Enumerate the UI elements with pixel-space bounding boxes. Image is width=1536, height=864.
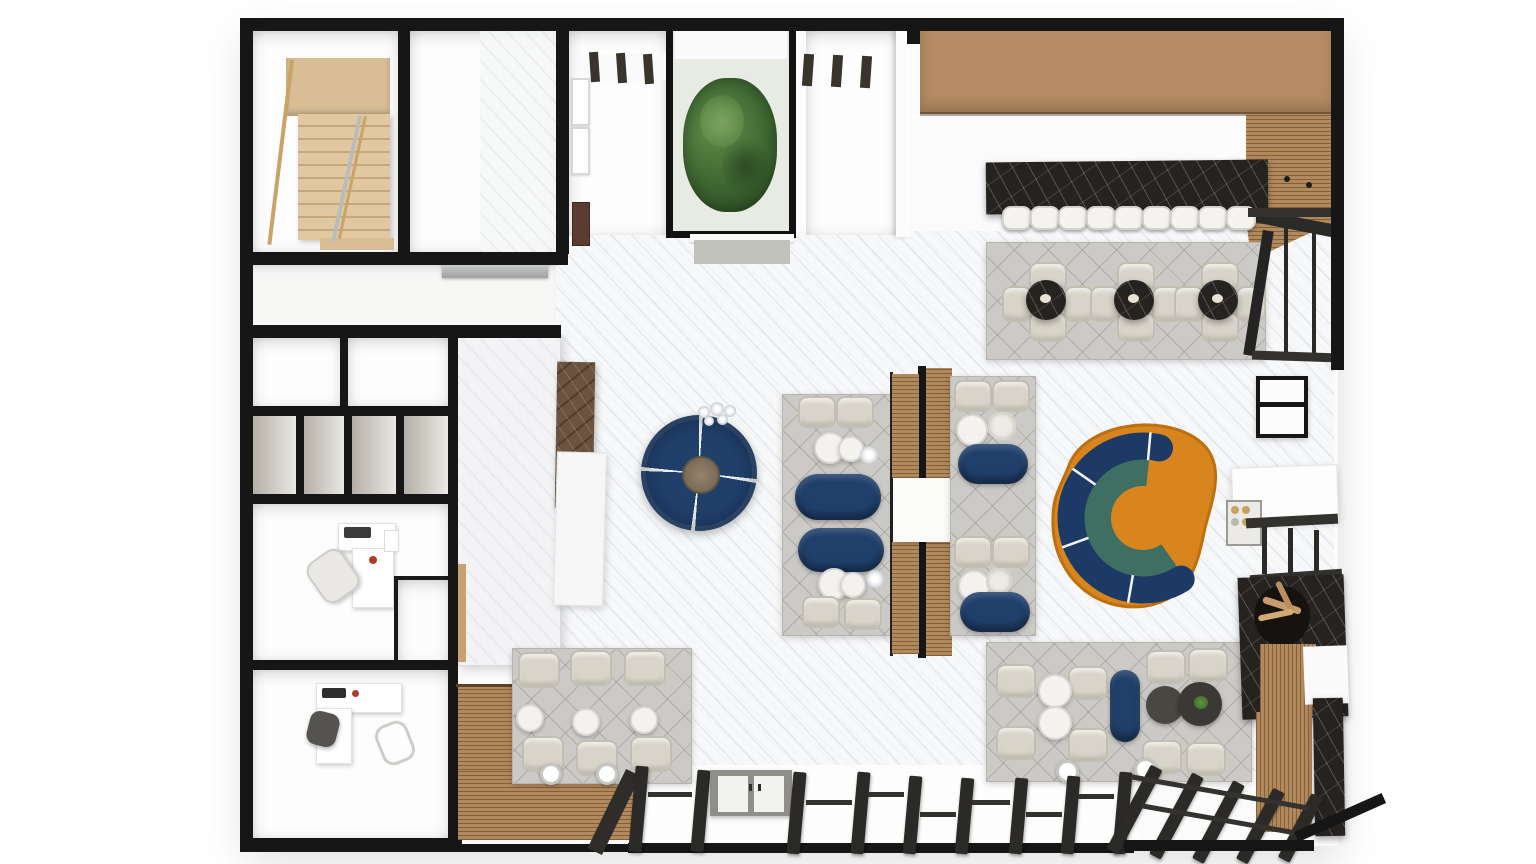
se-table-1 [1038, 674, 1072, 708]
divider-slats-left-bottom [892, 542, 919, 654]
office1-monitor [344, 527, 371, 538]
wall-bottom-left [240, 838, 462, 852]
wall-room2-room3-divider [556, 18, 569, 254]
service-core [457, 332, 561, 666]
booth1-side-lamp-1 [860, 446, 878, 464]
wall-cubby-divider-1 [296, 415, 304, 495]
wall-office1-bottom [250, 660, 450, 670]
se-bottom-trim [1124, 840, 1314, 851]
entry-vestibule [806, 31, 898, 235]
booth2-centerpiece-2 [986, 568, 1012, 594]
se-table-plant [1194, 696, 1208, 709]
bar-stool-6 [1142, 206, 1172, 230]
wall-left [240, 18, 253, 852]
office1-paper [384, 530, 399, 552]
meeting-room-b [348, 338, 448, 406]
se-chair-6 [1188, 648, 1228, 682]
wall-stair-divider [398, 28, 410, 254]
terrace-chair-3 [624, 650, 666, 686]
booth1-loveseat-1 [795, 474, 881, 520]
office2-keyboard [322, 688, 346, 698]
booth1-loveseat-2 [798, 528, 884, 572]
booth2-loveseat-2 [960, 592, 1030, 632]
divider-counter [893, 478, 953, 542]
se-chair-4 [1068, 728, 1108, 762]
wall-corridor-bottom [243, 325, 561, 338]
fireplace-white-notch [1303, 645, 1349, 705]
divider-slats-right-bottom [926, 542, 952, 656]
railing-ne-top [1248, 208, 1336, 217]
porch-rail-6 [1026, 812, 1062, 817]
terrace-deck-edge [456, 684, 514, 687]
gallery-frame-1 [571, 78, 590, 126]
railing-ne-picket-1 [1284, 220, 1288, 352]
gallery-frame-2 [571, 127, 590, 175]
porch-rail-2 [806, 800, 852, 805]
booth2-armchair-1 [954, 380, 992, 412]
terrace-floor-lamp-2 [596, 763, 618, 785]
booth2-loveseat-1 [958, 444, 1028, 484]
wall-cubby-bottom [250, 494, 450, 504]
porch-rail-1 [648, 792, 692, 797]
bar-stool-4 [1086, 206, 1116, 230]
se-chair-3 [996, 726, 1036, 760]
wall-rooms-row-divider [340, 330, 348, 408]
terrace-floor-lamp-1 [540, 763, 562, 785]
booth2-centerpiece-1 [988, 412, 1016, 440]
office2-accent-item [352, 690, 359, 697]
porch-rail-5 [972, 800, 1010, 805]
booth1-side-lamp-2 [866, 570, 884, 588]
vacant-room-marble-wall [480, 31, 556, 252]
cubby-3 [352, 415, 397, 494]
dining1-centerpiece [1040, 294, 1051, 303]
atrium-pad [694, 240, 790, 264]
porch-rail-3 [868, 792, 904, 797]
dining3-centerpiece [1212, 294, 1223, 303]
booth2-armchair-2 [992, 380, 1030, 412]
booth1-armchair-top-1 [798, 396, 836, 428]
bar-stool-5 [1114, 206, 1144, 230]
floor-plan-canvas [0, 0, 1536, 864]
curved-sofa-cluster [1038, 406, 1252, 630]
bottle-1 [1231, 506, 1239, 514]
wall-terrace-sill [458, 844, 634, 852]
bar-stool-3 [1058, 206, 1088, 230]
core-white-counter [553, 451, 607, 606]
terrace-chair-1 [518, 652, 560, 688]
terrace-table-1 [516, 704, 544, 732]
deck-hardware-dot-2 [1306, 182, 1312, 188]
bar-stool-7 [1170, 206, 1200, 230]
closet-nook [394, 576, 448, 664]
bottle-3 [1231, 518, 1239, 526]
round-sofa-center-table [682, 456, 720, 494]
dining2-centerpiece [1128, 294, 1139, 303]
terrace-chair-2 [570, 650, 612, 686]
se-table-2 [1038, 706, 1072, 740]
divider-slats-left-top [892, 374, 919, 478]
se-chair-8 [1186, 742, 1226, 776]
core-wood-strip [458, 564, 466, 662]
high-table-crossbar [1258, 402, 1306, 407]
railing-mid-picket-1 [1262, 526, 1267, 574]
booth2-armchair-3 [954, 536, 992, 568]
porch-door-panel-1 [718, 776, 748, 812]
terrace-table-3 [630, 706, 658, 734]
booth1-table-4 [840, 572, 866, 598]
porch-door-handle-1 [749, 784, 752, 791]
chandelier-bubble-4 [704, 416, 714, 426]
cubby-4 [404, 415, 448, 494]
railing-ne-picket-2 [1312, 222, 1316, 354]
se-chair-2 [1068, 666, 1108, 700]
entry-side-wall [896, 31, 911, 237]
porch-door-handle-2 [758, 784, 761, 791]
bar-stool-1 [1002, 206, 1032, 230]
se-chair-1 [996, 664, 1036, 698]
booth1-armchair-bottom-1 [802, 596, 840, 628]
atrium-plant-shadow [722, 135, 768, 197]
booth1-armchair-bottom-2 [844, 598, 882, 630]
bar-back-counter [920, 28, 1334, 114]
se-navy-bench [1110, 670, 1140, 742]
high-table-black-frame [1256, 376, 1308, 438]
deck-hardware-dot-1 [1284, 176, 1290, 182]
wall-cubby-divider-2 [344, 415, 352, 495]
bar-stool-2 [1030, 206, 1060, 230]
porch-door-panel-2 [754, 776, 784, 812]
se-chair-5 [1146, 650, 1186, 684]
bar-stool-8 [1198, 206, 1228, 230]
railing-mid-picket-2 [1288, 528, 1293, 578]
terrace-table-2 [572, 708, 600, 736]
bottle-2 [1242, 506, 1250, 514]
booth2-table-1 [956, 414, 988, 446]
chandelier-bubble-5 [717, 414, 728, 425]
cubby-1 [253, 415, 297, 494]
office1-accent-item [369, 556, 377, 564]
booth1-armchair-top-2 [836, 396, 874, 428]
wall-right-upper [1331, 18, 1344, 370]
porch-rail-4 [920, 812, 956, 817]
meeting-room-a [253, 338, 341, 406]
booth2-armchair-4 [992, 536, 1030, 568]
wall-cubby-divider-3 [396, 415, 404, 495]
stair-landing [286, 58, 390, 116]
porch-rail-7 [1078, 794, 1114, 799]
divider-slats-right-top [926, 368, 952, 478]
cubby-2 [304, 415, 345, 494]
atrium-ledge [675, 29, 787, 59]
gallery-artwork-dark [572, 202, 590, 246]
